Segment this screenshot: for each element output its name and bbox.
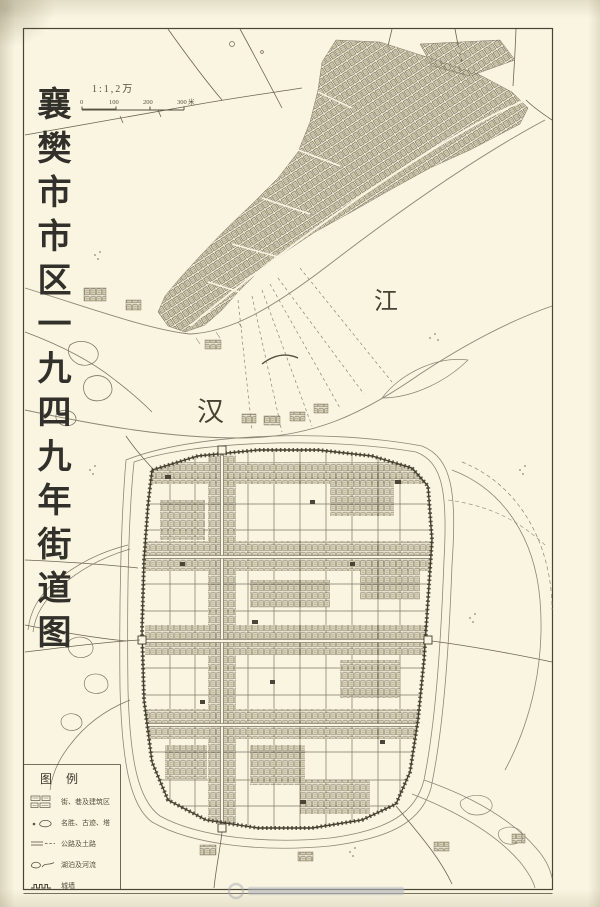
legend-item-label: 城墙 — [61, 881, 75, 891]
legend-item: 名胜、古迹、塔 — [30, 816, 118, 830]
svg-text:200: 200 — [143, 99, 153, 106]
map-title-vertical: 襄樊市市区一九四九年街道图 — [33, 86, 67, 658]
legend-item-label: 公路及土路 — [61, 839, 96, 849]
legend-title: 图例 — [30, 770, 118, 787]
south-hamlets — [200, 834, 525, 861]
watermark — [228, 882, 404, 900]
legend-item-label: 名胜、古迹、塔 — [61, 818, 110, 828]
legend-item: 街、巷及建筑区 — [30, 795, 118, 809]
legend: 图例 街、巷及建筑区 名胜、古迹、塔 — [30, 770, 118, 900]
watermark-logo-icon — [228, 883, 244, 899]
lake-river-symbol — [30, 858, 56, 872]
svg-text:100: 100 — [109, 99, 119, 106]
building-blocks-symbol — [30, 795, 56, 809]
east-canals — [448, 462, 552, 770]
river-label-jiang: 江 — [374, 281, 398, 316]
svg-text:300: 300 — [177, 99, 187, 106]
xiangyang-walled-city — [120, 436, 454, 849]
scale-block: 1:1,2万 0 100 200 300 米 — [78, 80, 196, 114]
svg-text:米: 米 — [188, 97, 195, 106]
river-label-han: 汉 — [197, 390, 224, 429]
landmark-pond-symbol — [30, 816, 56, 830]
road-symbol — [30, 837, 56, 851]
legend-item-label: 湖泊及河流 — [61, 860, 96, 870]
city-wall-symbol — [30, 879, 56, 893]
watermark-text-blur — [248, 887, 404, 895]
city-interior — [140, 450, 435, 830]
scanned-map-page: 襄樊市市区一九四九年街道图 1:1,2万 0 100 200 300 米 汉 江… — [0, 0, 600, 907]
fancheng-blocks — [158, 40, 528, 332]
legend-item-label: 街、巷及建筑区 — [61, 797, 110, 807]
north-wharf-blocks — [242, 404, 328, 425]
legend-item: 公路及土路 — [30, 837, 118, 851]
svg-text:0: 0 — [80, 99, 83, 106]
scale-bar: 0 100 200 300 米 — [78, 96, 196, 114]
legend-item: 湖泊及河流 — [30, 858, 118, 872]
scale-ratio-label: 1:1,2万 — [92, 80, 196, 95]
legend-item: 城墙 — [30, 879, 118, 893]
river-label-swash — [262, 355, 298, 364]
southeast-meander — [412, 780, 552, 888]
